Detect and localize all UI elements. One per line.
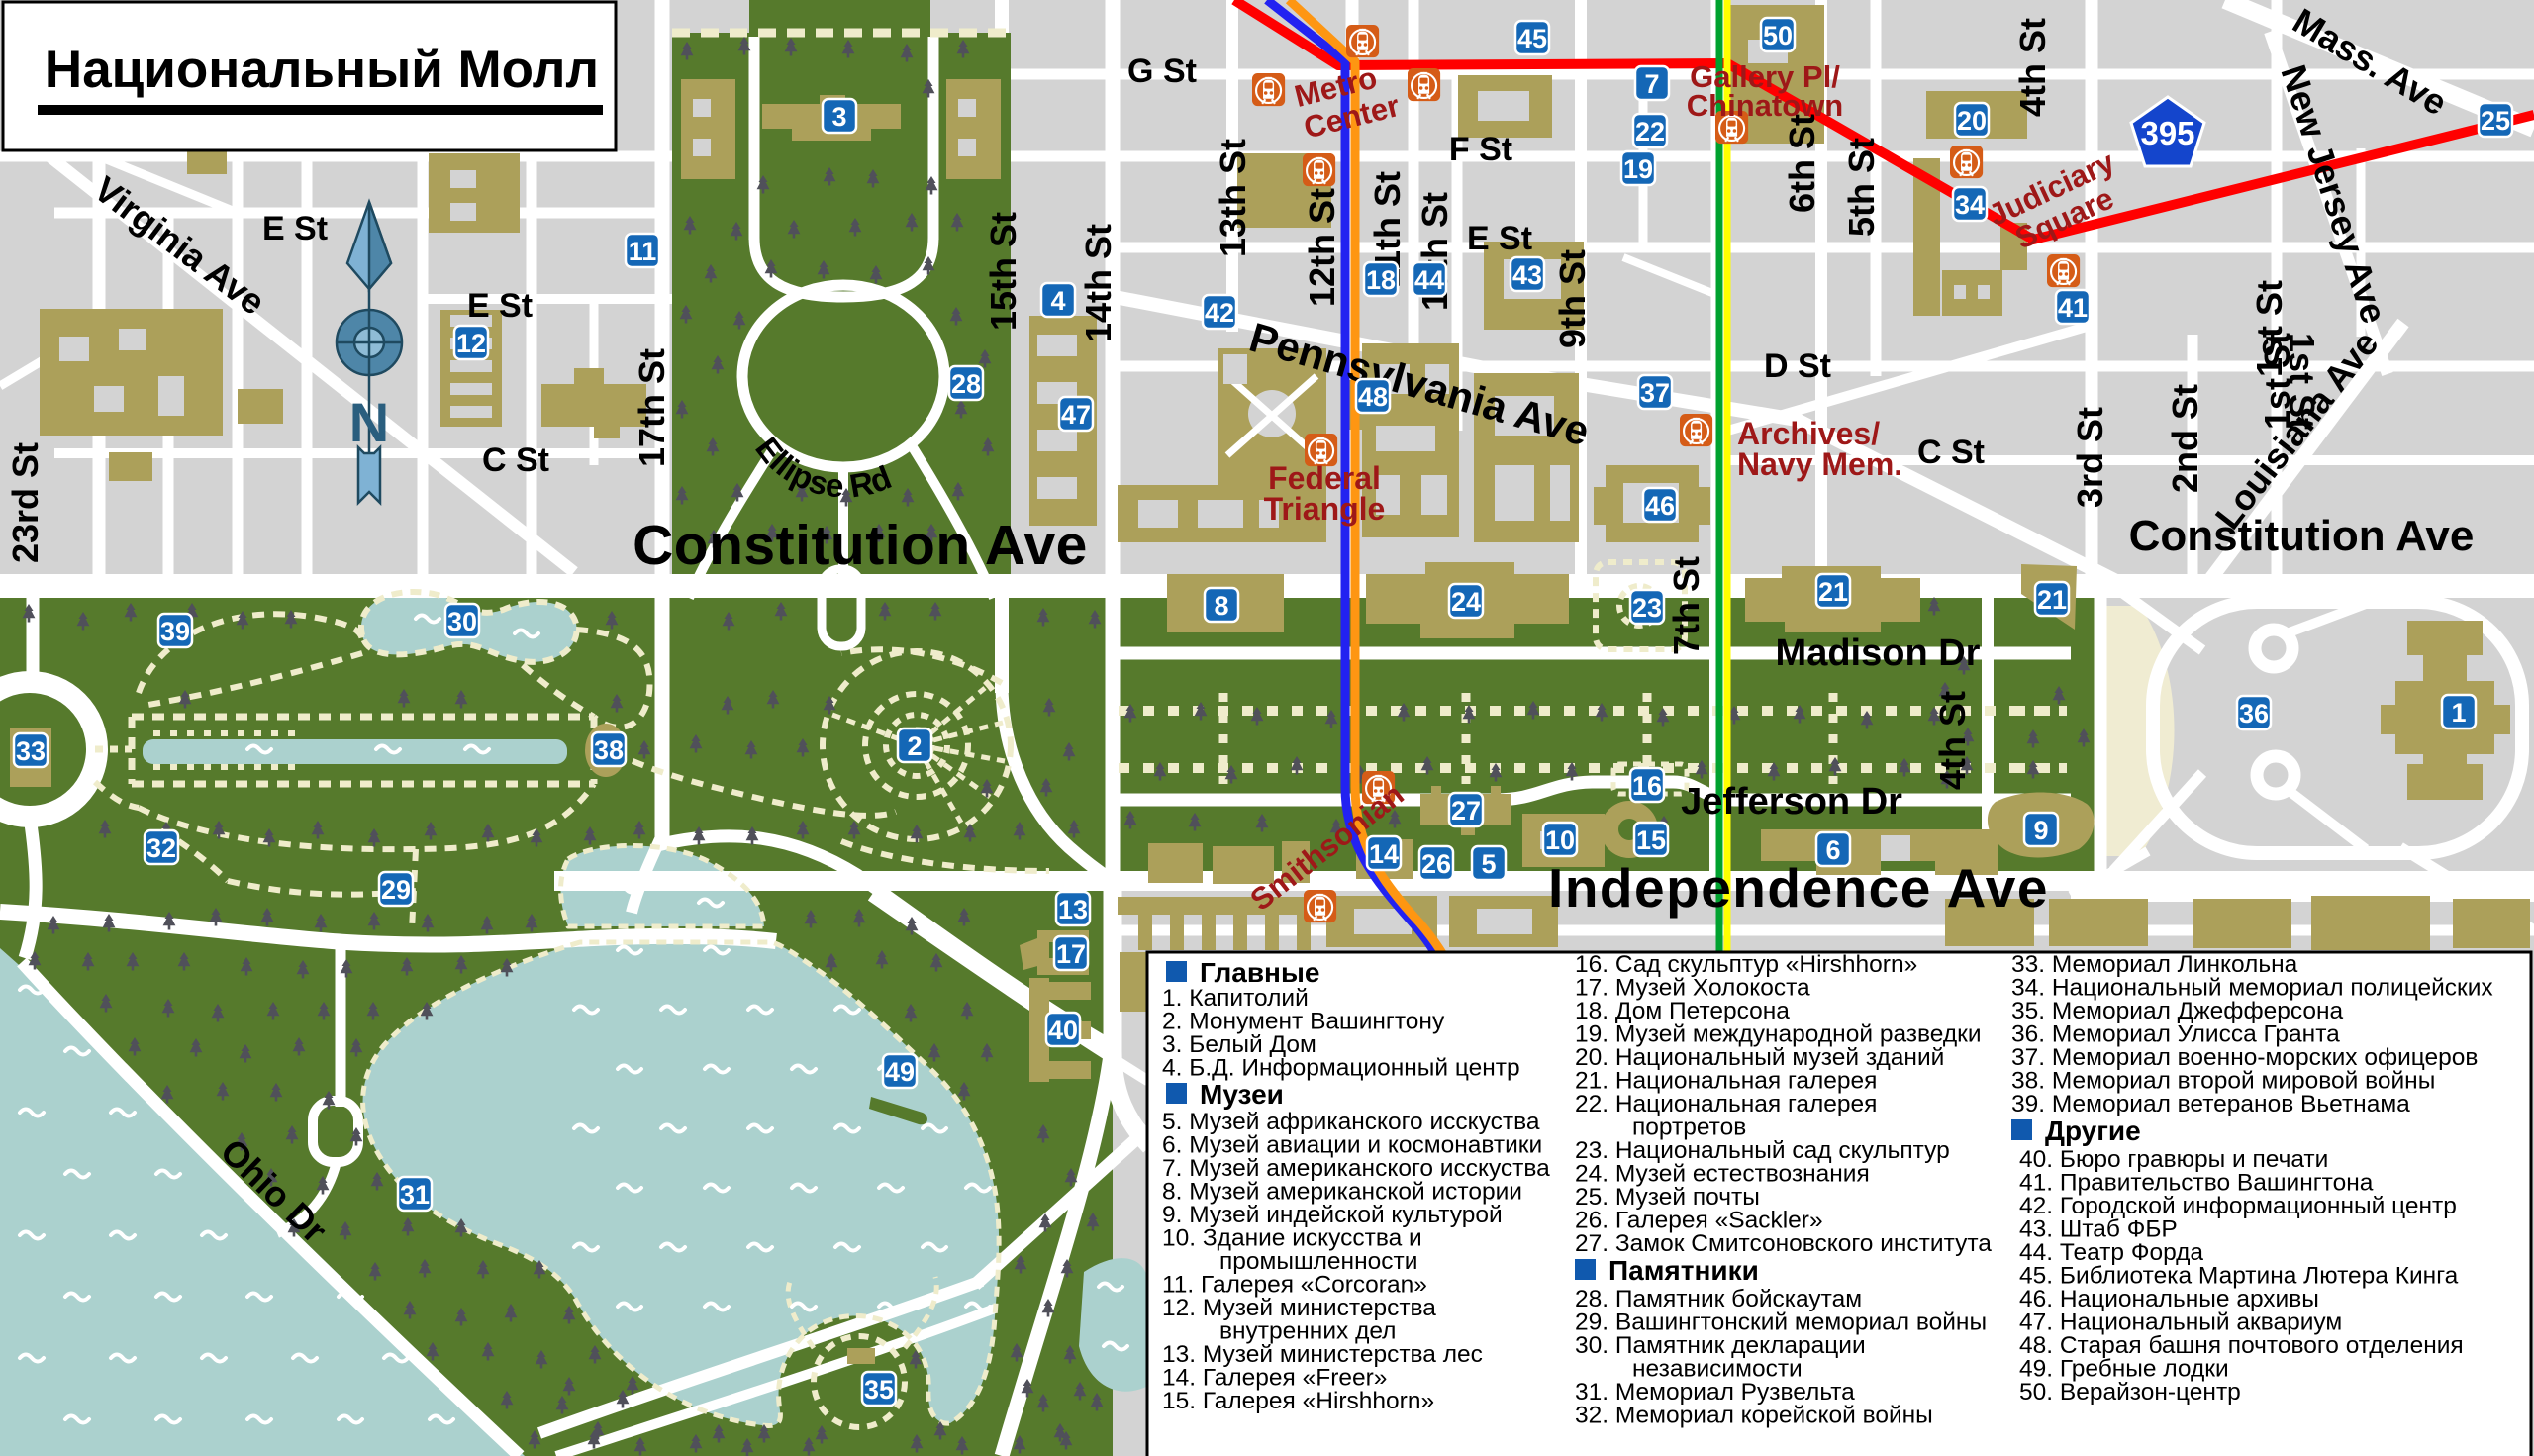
svg-text:49: 49 (885, 1057, 915, 1087)
svg-text:27. Замок Смитсоновского инсти: 27. Замок Смитсоновского института (1575, 1230, 1992, 1257)
svg-text:Constitution Ave: Constitution Ave (2129, 512, 2475, 560)
svg-text:395: 395 (2140, 115, 2194, 151)
svg-text:21: 21 (2037, 585, 2067, 615)
svg-text:Chinatown: Chinatown (1687, 88, 1843, 123)
svg-text:3: 3 (831, 102, 846, 132)
svg-text:Jefferson Dr: Jefferson Dr (1681, 781, 1902, 823)
svg-text:45: 45 (1517, 24, 1547, 53)
svg-text:44: 44 (1414, 265, 1444, 295)
svg-text:42: 42 (1205, 298, 1234, 328)
svg-text:21: 21 (1818, 577, 1848, 607)
svg-text:E St: E St (1467, 220, 1532, 257)
svg-text:15: 15 (1636, 825, 1666, 855)
svg-text:23: 23 (1632, 593, 1662, 623)
svg-text:27: 27 (1451, 796, 1481, 825)
svg-text:39. Мемориал ветеранов Вьетнам: 39. Мемориал ветеранов Вьетнама (2011, 1091, 2410, 1117)
svg-text:3rd St: 3rd St (2070, 407, 2110, 508)
svg-text:7th St: 7th St (1666, 556, 1706, 655)
svg-text:15. Галерея «Hirshhorn»: 15. Галерея «Hirshhorn» (1162, 1388, 1434, 1414)
svg-text:40: 40 (1048, 1016, 1078, 1045)
svg-text:E St: E St (467, 287, 533, 325)
svg-text:48: 48 (1358, 382, 1388, 412)
svg-text:6th St: 6th St (1782, 114, 1822, 213)
svg-text:8: 8 (1214, 591, 1228, 621)
svg-text:4th St: 4th St (1932, 691, 1973, 790)
svg-text:Madison Dr: Madison Dr (1776, 632, 1981, 674)
svg-text:20: 20 (1957, 106, 1987, 136)
svg-text:D St: D St (1764, 347, 1831, 385)
svg-text:Главные: Главные (1200, 957, 1319, 988)
svg-text:Triangle: Triangle (1264, 491, 1386, 527)
svg-text:4: 4 (1050, 286, 1065, 316)
svg-text:24: 24 (1451, 587, 1481, 617)
svg-text:50: 50 (1763, 21, 1793, 50)
svg-text:Independence Ave: Independence Ave (1548, 857, 2049, 919)
svg-text:Музеи: Музеи (1200, 1079, 1284, 1110)
svg-text:E St: E St (262, 210, 328, 247)
svg-text:37: 37 (1640, 378, 1670, 408)
svg-text:5: 5 (1481, 849, 1496, 879)
svg-text:Navy Mem.: Navy Mem. (1737, 446, 1902, 482)
svg-text:29: 29 (381, 875, 411, 905)
svg-text:17th St: 17th St (632, 348, 672, 467)
svg-text:4th St: 4th St (2012, 18, 2053, 117)
svg-text:Национальный Молл: Национальный Молл (45, 41, 599, 99)
svg-text:23rd St: 23rd St (5, 442, 46, 563)
svg-text:12: 12 (456, 329, 486, 358)
svg-text:32: 32 (146, 833, 176, 863)
svg-text:34: 34 (1955, 190, 1985, 220)
svg-text:43: 43 (1512, 260, 1542, 290)
svg-text:39: 39 (160, 617, 190, 646)
svg-text:38: 38 (594, 735, 624, 765)
svg-text:7: 7 (1644, 69, 1659, 99)
svg-text:5th St: 5th St (1841, 138, 1882, 237)
svg-text:31: 31 (400, 1180, 430, 1210)
svg-text:13th St: 13th St (1213, 139, 1253, 257)
svg-text:18: 18 (1366, 265, 1396, 295)
svg-text:36: 36 (2239, 699, 2269, 728)
svg-text:F St: F St (1449, 131, 1512, 168)
svg-text:C St: C St (482, 441, 549, 479)
svg-text:50. Верайзон-центр: 50. Верайзон-центр (2019, 1379, 2241, 1406)
svg-text:41: 41 (2058, 293, 2088, 323)
svg-text:1: 1 (2451, 698, 2466, 728)
svg-text:2: 2 (907, 731, 922, 761)
svg-text:C St: C St (1917, 434, 1985, 471)
svg-text:Памятники: Памятники (1608, 1255, 1759, 1286)
svg-text:9: 9 (2033, 816, 2048, 845)
svg-text:26: 26 (1421, 849, 1451, 879)
svg-text:Constitution Ave: Constitution Ave (633, 514, 1088, 577)
svg-text:11: 11 (629, 237, 657, 266)
svg-text:14th St: 14th St (1078, 224, 1119, 342)
svg-text:47: 47 (1061, 400, 1091, 430)
svg-text:12th St: 12th St (1302, 188, 1342, 307)
svg-text:15th St: 15th St (983, 212, 1023, 331)
svg-text:46: 46 (1645, 491, 1675, 521)
svg-text:Другие: Другие (2045, 1116, 2141, 1146)
svg-text:4. Б.Д. Информационный центр: 4. Б.Д. Информационный центр (1162, 1055, 1520, 1082)
svg-text:35: 35 (864, 1375, 894, 1405)
svg-text:13: 13 (1058, 895, 1088, 924)
svg-text:N: N (349, 391, 389, 453)
svg-text:30: 30 (447, 607, 477, 636)
svg-text:2nd St: 2nd St (2165, 384, 2205, 493)
svg-text:32. Мемориал корейской войны: 32. Мемориал корейской войны (1575, 1403, 1933, 1429)
svg-text:G St: G St (1127, 52, 1197, 90)
svg-text:17: 17 (1056, 939, 1086, 969)
svg-text:22: 22 (1635, 117, 1665, 146)
svg-text:16: 16 (1632, 771, 1662, 801)
svg-text:10: 10 (1545, 825, 1575, 855)
svg-text:19: 19 (1623, 154, 1653, 184)
svg-text:28: 28 (951, 369, 981, 399)
svg-text:6: 6 (1825, 835, 1840, 865)
svg-text:14: 14 (1369, 839, 1399, 869)
svg-text:9th St: 9th St (1552, 249, 1593, 348)
svg-text:33: 33 (16, 736, 46, 766)
svg-text:25: 25 (2481, 106, 2510, 136)
